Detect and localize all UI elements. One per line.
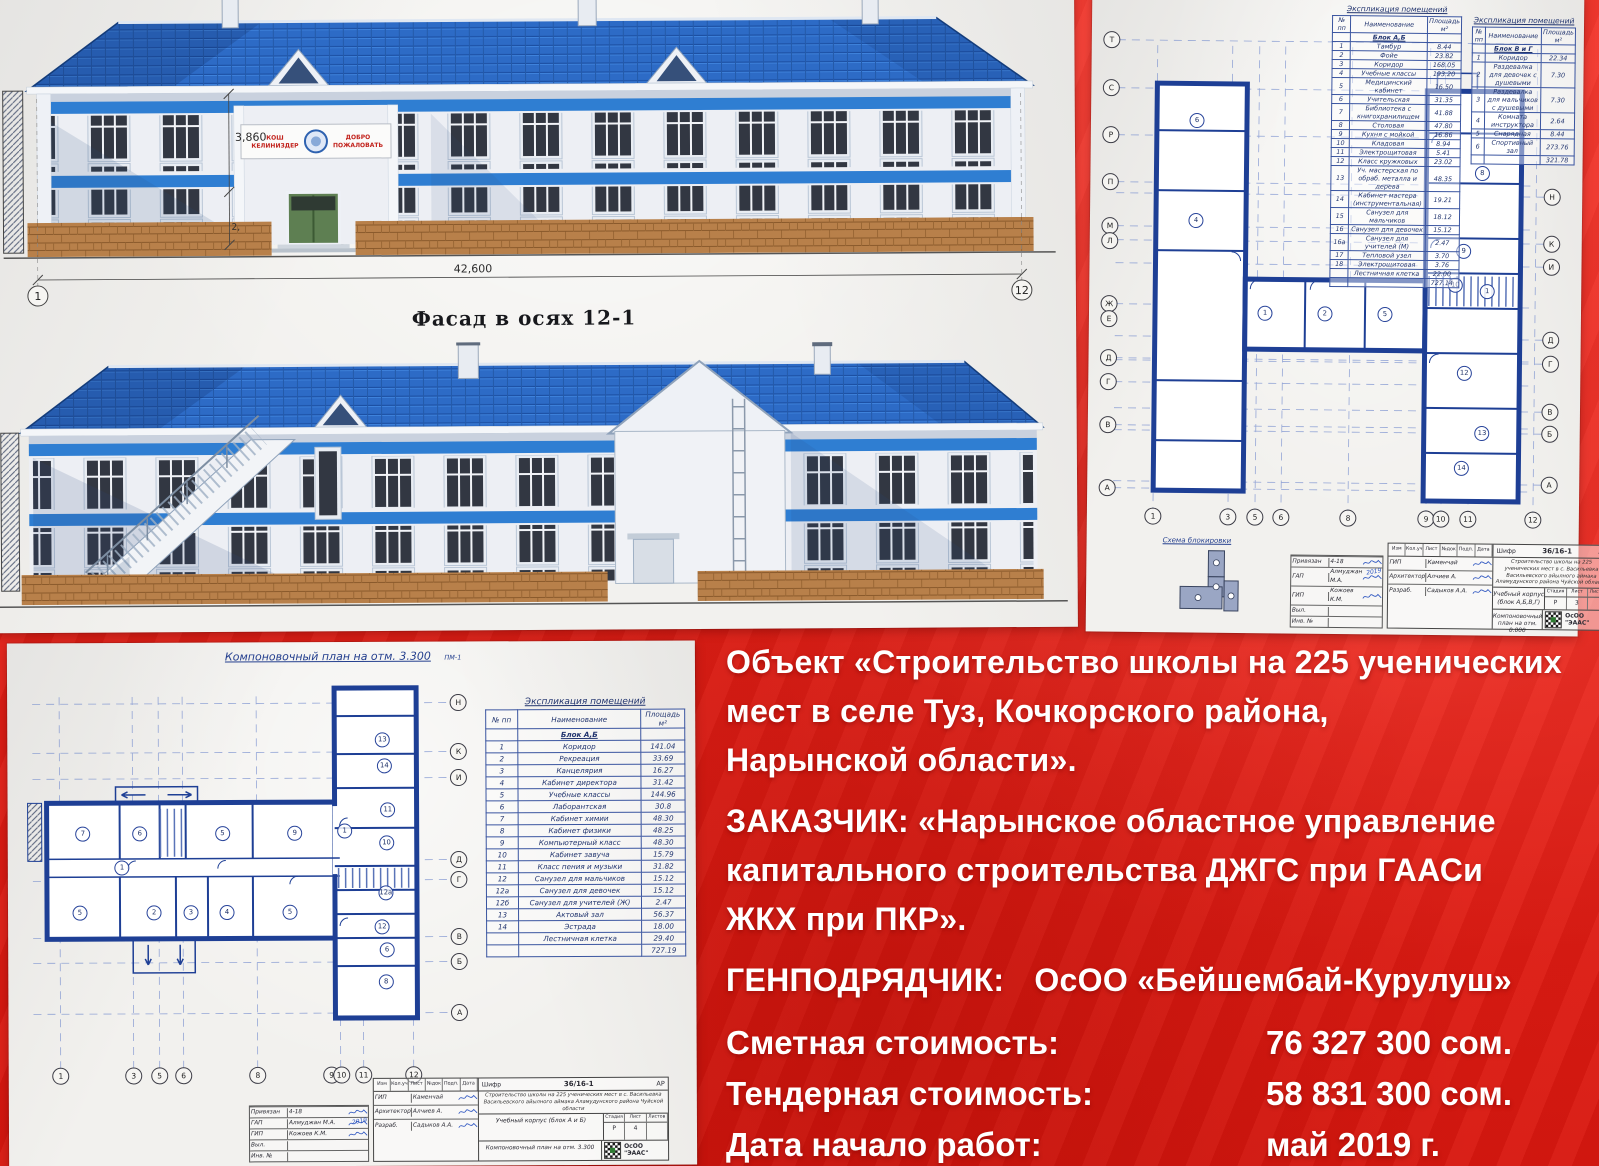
object-line: Нарынской области».: [726, 736, 1599, 785]
sheet-number: 4: [625, 1123, 646, 1140]
stamp-row: ГИПКаменчай: [374, 1091, 478, 1104]
axis-circle: Н: [1544, 189, 1561, 206]
signature-scribble: [1362, 558, 1382, 567]
table-row: Лестничная клетка29.40: [487, 932, 686, 945]
stamp-row: Привязан4-18: [1291, 556, 1382, 568]
rear-facade-drawing: [0, 339, 1070, 632]
signature-scribble: [1472, 559, 1492, 568]
stamp-row: Разраб.Садыков А.А.: [374, 1118, 478, 1132]
project-description: Строительство школы на 225 ученических м…: [1493, 558, 1599, 589]
axis-circle: Т: [1103, 31, 1120, 48]
axis-circle: А: [451, 1004, 468, 1021]
room-number-circle: 5: [72, 906, 87, 921]
table-row: 3Раздевалка для мальчиков с душевыми7.30: [1472, 87, 1575, 113]
axis-circle: И: [1543, 259, 1560, 276]
table-row: 16аСанузел для учителей (М)2.47: [1330, 233, 1459, 251]
contractor-label: ГЕНПОДРЯДЧИК:: [726, 962, 1004, 998]
code-value: 36/16-1: [1516, 547, 1599, 556]
axis-circle: 3: [1219, 508, 1236, 525]
table-row: 2Раздевалка для девочек с душевыми7.30: [1472, 62, 1575, 88]
title-block: 2019 Привязан4-18ГАПАлмуджан М.А.ГИПКожо…: [1290, 542, 1569, 631]
room-number-circle: 13: [375, 732, 390, 747]
room-schedule: № ппНаименованиеПлощадь м²Блок А,Б1Корид…: [485, 709, 686, 958]
welcome-text-ru-2: ПОЖАЛОВАТЬ: [333, 142, 384, 149]
plan-caption-text: Компоновочный план на отм. 3.300: [225, 650, 431, 664]
blocking-scheme-diagram: [1162, 546, 1283, 619]
room-number-circle: 6: [379, 942, 394, 957]
table-row: 9Компьютерный класс48.30: [486, 836, 685, 849]
room-number-circle: 4: [1188, 213, 1203, 228]
start-date-value: май 2019 г.: [1266, 1119, 1440, 1166]
title-block: 2019 Привязан4-18ГАПАлмуджан М.А.ГИПКожо…: [249, 1077, 669, 1163]
drawing-title: Компоновочный план на отм. 3.300: [479, 1141, 602, 1161]
room-number-circle: 4: [220, 905, 235, 920]
drawing-title: Компоновочный план на отм. 0.000: [1493, 610, 1543, 630]
facades-sheet: КОШ КЕЛИНИЗДЕР ДОБРО ПОЖАЛОВАТЬ 42,600 3…: [0, 0, 1078, 633]
table-row: 4Кабинет директора31.42: [486, 776, 685, 789]
start-date-row: Дата начало работ: май 2019 г.: [726, 1119, 1599, 1166]
stamp-binding-table: 2019 Привязан4-18ГАПАлмуджан М.А.ГИПКожо…: [249, 1105, 369, 1163]
stamp-signers: ГИПКаменчайАрхитекторАлчиев А.Разраб.Сад…: [1388, 557, 1494, 629]
room-number-circle: 14: [377, 758, 392, 773]
code-label: Шифр: [482, 1081, 501, 1088]
signature-scribble: [458, 1093, 478, 1102]
room-number-circle: 5: [1377, 307, 1392, 322]
axis-circle: В: [1541, 404, 1558, 421]
table-title: Экспликация помещений: [485, 697, 685, 708]
room-number-circle: 10: [379, 835, 394, 850]
axis-circle: К: [1543, 236, 1560, 253]
sheets-total: [1588, 598, 1599, 610]
signature-scribble: [458, 1107, 478, 1116]
sheet-number: 3: [1567, 597, 1588, 609]
banner-text-block: Объект «Строительство школы на 225 учени…: [700, 628, 1599, 1166]
room-number-circle: 5: [215, 826, 230, 841]
upper-floor-plan: НКИДГВБА13568910111276591523451314111012…: [7, 675, 479, 1119]
contractor-value: ОсОО «Бейшембай-Курулуш»: [1034, 962, 1512, 998]
axis-circle: 1: [52, 1068, 69, 1085]
axis-circle: Б: [451, 953, 468, 970]
axis-circle: Г: [1542, 355, 1559, 372]
stamp-main: ИзмКол.учЛист№докПодп.Дата Шифр 36/16-1 …: [373, 1077, 669, 1162]
stamp-row: Разраб.Садыков А.А.: [1388, 584, 1492, 599]
object-name: Учебный корпус (блок А и Б): [479, 1114, 603, 1140]
axis-circle: 12: [1524, 511, 1541, 528]
axis-circle: П: [1102, 173, 1119, 190]
table-row: 7Кабинет химии48.30: [486, 812, 685, 825]
axis-circle: Д: [1100, 349, 1117, 366]
axis-circle: 1: [1144, 507, 1161, 524]
room-number-circle: 6: [1190, 113, 1205, 128]
room-number-circle: 3: [183, 905, 198, 920]
sheets-total: [647, 1123, 668, 1140]
stamp-row: Привязан4-18: [250, 1106, 368, 1118]
axis-circle: Е: [1100, 310, 1117, 327]
room-schedule-block-vg: Экспликация помещений № ппНаименованиеПл…: [1471, 15, 1577, 165]
signature-scribble: [1362, 592, 1382, 601]
customer-line: капитального строительства ДЖГС при ГААС…: [726, 846, 1599, 895]
stamp-row: Инв. №: [1291, 616, 1382, 628]
table-row: 5Медицинский кабинет16.50: [1332, 77, 1461, 95]
axis-circle: И: [450, 769, 467, 786]
revision-header-cells: ИзмКол.учЛист№докПодп.Дата: [1389, 544, 1494, 557]
brick-fence-left: [22, 572, 608, 606]
dim-total-width: 42,600: [454, 262, 493, 275]
table-row: 321.78: [1471, 155, 1574, 165]
table-row: 11Класс пения и музыки31.82: [486, 860, 685, 873]
table-row: 4Комната инструктора2.64: [1471, 112, 1574, 130]
axis-circle: В: [451, 928, 468, 945]
table-row: 14Кабинет мастера (инструментальная)19.2…: [1331, 190, 1460, 208]
stamp-row: Выл.: [250, 1139, 368, 1151]
axis-circle: Л: [1101, 232, 1118, 249]
room-number-circle: 14: [1454, 461, 1469, 476]
object-line: Объект «Строительство школы на 225 учени…: [726, 638, 1599, 687]
room-number-circle: 5: [283, 905, 298, 920]
axis-circle: 5: [1246, 508, 1263, 525]
axis-circle: С: [1103, 79, 1120, 96]
project-description: Строительство школы на 225 ученических м…: [479, 1091, 668, 1115]
mark-ar: АР: [656, 1080, 664, 1088]
axis-circle: 11: [1459, 510, 1476, 527]
dim-floor-height-lower: 2,: [231, 223, 240, 233]
room-schedule-table: Экспликация помещений № ппНаименованиеПл…: [485, 697, 686, 958]
axis-circle: Д: [1542, 332, 1559, 349]
upper-floor-plan-sheet: Компоновочный план на отм. 3.300 ПМ-1: [7, 641, 697, 1166]
table-row: 8Кабинет физики48.25: [486, 824, 685, 837]
axis-circle: В: [1099, 416, 1116, 433]
table-row: 13Уч. мастерская по обраб. металла и дер…: [1331, 165, 1460, 191]
stage-headers: СтадияЛистЛистов: [604, 1114, 668, 1123]
signature-scribble: [458, 1121, 478, 1130]
room-number-circle: 9: [287, 826, 302, 841]
plan-caption: Компоновочный план на отм. 3.300 ПМ-1: [225, 650, 461, 664]
porch: [133, 939, 195, 973]
room-number-circle: 12: [1457, 366, 1472, 381]
table-row: 12Санузел для мальчиков15.12: [486, 872, 685, 885]
signature-scribble: [1472, 587, 1492, 596]
room-number-circle: 8: [1475, 166, 1490, 181]
room-number-circle: 11: [380, 802, 395, 817]
table-row: 6Лаборантская30.8: [486, 800, 685, 813]
dim-floor-height-upper: 3,860: [235, 131, 267, 144]
axis-circle: Б: [1541, 426, 1558, 443]
table-title: Экспликация помещений: [1332, 4, 1462, 14]
start-date-label: Дата начало работ:: [726, 1119, 1266, 1166]
table-row: 1Коридор141.04: [486, 740, 685, 753]
axis-circle: Г: [451, 871, 468, 888]
customer-line: ЖКХ при ПКР».: [726, 895, 1599, 944]
signature-scribble: [1472, 573, 1492, 582]
stamp-main: ИзмКол.учЛист№докПодп.Дата Шифр 36/16-1 …: [1387, 543, 1599, 631]
axis-label-12: 12: [1015, 284, 1029, 297]
room-schedule: № ппНаименованиеПлощадь м²Блок А,Б1Тамбу…: [1329, 15, 1462, 288]
stamp-row: АрхитекторАлчиев А.: [1388, 570, 1492, 585]
room-number-circle: 2: [1317, 306, 1332, 321]
tender-cost-label: Тендерная стоимость:: [726, 1068, 1266, 1119]
table-row: 727.14: [1330, 277, 1459, 287]
room-schedule-block-ab: Экспликация помещений № ппНаименованиеПл…: [1329, 4, 1462, 288]
table-row: 7Библиотека с книгохранилищем41.88: [1332, 103, 1461, 121]
revision-header-cells: ИзмКол.учЛист№докПодп.Дата: [374, 1078, 479, 1090]
firm-name: ОсОО "ЭААС": [624, 1143, 666, 1157]
table-row: 15Санузел для мальчиков18.12: [1330, 207, 1459, 225]
facade-caption: Фасад в осях 12-1: [304, 305, 744, 332]
axis-circle: Н: [450, 694, 467, 711]
blocking-scheme: Схема блокировки: [1162, 536, 1293, 619]
windows-row-upper: [41, 110, 1021, 172]
object-line: мест в селе Туз, Кочкорского района,: [726, 687, 1599, 736]
table-row: 3Канцелярия16.27: [486, 764, 685, 777]
axis-circle: 6: [175, 1067, 192, 1084]
room-number-circle: 6: [132, 826, 147, 841]
signature-scribble: [348, 1129, 368, 1138]
object-name: Учебный корпус (блок А,Б,В,Г): [1493, 588, 1544, 610]
axis-circle: А: [1099, 479, 1116, 496]
room-number-circle: 1: [1258, 306, 1273, 321]
customer-line: ЗАКАЗЧИК: «Нарынское областное управлени…: [726, 797, 1599, 846]
axis-circle: Г: [1100, 373, 1117, 390]
stamp-row: ГИПКожоев К.М.: [250, 1128, 368, 1140]
welcome-text-kg-1: КОШ: [266, 135, 283, 142]
table-row: 10Кабинет завуча15.79: [486, 848, 685, 861]
axis-circle: Р: [1102, 126, 1119, 143]
code-label: Шифр: [1497, 547, 1516, 554]
qr-code-icon: [1545, 611, 1562, 628]
room-number-circle: 12а: [378, 885, 393, 900]
axis-circle: 3: [125, 1068, 142, 1085]
table-row: 727.19: [487, 944, 686, 957]
table-row: 14Эстрада18.00: [487, 920, 686, 933]
axis-circle: Д: [450, 851, 467, 868]
stamp-row: ГИПКожоев К.М.: [1291, 586, 1382, 606]
ground-floor-plan-sheet: ТСРПМЛЖЕДГВАНКИДГВБА13568910111264125891…: [1086, 0, 1585, 637]
estimate-cost-row: Сметная стоимость: 76 327 300 сом.: [726, 1017, 1599, 1068]
blocking-scheme-title: Схема блокировки: [1163, 536, 1293, 545]
brick-fence-right: [698, 569, 1044, 601]
stamp-row: ГАПАлмуджан М.А.: [250, 1117, 368, 1129]
table-row: 2Рекреация33.69: [486, 752, 685, 765]
stage-value: Р: [604, 1123, 625, 1140]
construction-info-banner-photo: КОШ КЕЛИНИЗДЕР ДОБРО ПОЖАЛОВАТЬ 42,600 3…: [0, 0, 1599, 1166]
axis-label-1: 1: [34, 290, 41, 303]
contractor-line: ГЕНПОДРЯДЧИК:ОсОО «Бейшембай-Курулуш»: [726, 956, 1599, 1005]
stamp-row: Выл.: [1291, 605, 1382, 617]
estimate-cost-label: Сметная стоимость:: [726, 1017, 1266, 1068]
welcome-text-ru-1: ДОБРО: [346, 134, 371, 141]
room-schedule: № ппНаименованиеПлощадь м²Блок В и Г1Кор…: [1471, 26, 1576, 165]
signature-scribble: [348, 1107, 368, 1116]
code-value: 36/16-1: [501, 1080, 656, 1089]
stamp-binding-table: 2019 Привязан4-18ГАПАлмуджан М.А.ГИПКожо…: [1290, 555, 1384, 629]
qr-code-icon: [604, 1142, 621, 1159]
stamp-signers: ГИПКаменчайАрхитекторАлчиев А.Разраб.Сад…: [374, 1091, 479, 1160]
table-row: 13Актовый зал56.37: [487, 908, 686, 921]
stamp-row: АрхитекторАлчиев А.: [374, 1104, 478, 1118]
axis-circle: К: [450, 743, 467, 760]
axis-circle: 8: [1339, 509, 1356, 526]
tender-cost-row: Тендерная стоимость: 58 831 300 сом.: [726, 1068, 1599, 1119]
table-row: 6Спортивный зал273.76: [1471, 138, 1574, 156]
axis-circle: А: [1541, 476, 1558, 493]
stamp-row: ГИПКаменчай: [1388, 557, 1492, 571]
plan-caption-note: ПМ-1: [444, 654, 461, 662]
axis-circle: 10: [1432, 510, 1449, 527]
stage-value: Р: [1545, 597, 1566, 609]
brick-fence-right: [355, 217, 1033, 255]
table-row: 12аСанузел для девочек15.12: [486, 884, 685, 897]
estimate-cost-value: 76 327 300 сом.: [1266, 1017, 1512, 1068]
room-number-circle: 1: [337, 824, 352, 839]
left-edge-hatch: [3, 91, 24, 253]
table-row: 12бСанузел для учителей (Ж)2.47: [486, 896, 685, 909]
room-number-circle: 1: [115, 860, 130, 875]
main-facade-drawing: КОШ КЕЛИНИЗДЕР ДОБРО ПОЖАЛОВАТЬ 42,600 3…: [0, 0, 1058, 307]
firm-name: ОсОО "ЭААС": [1565, 613, 1599, 627]
room-number-circle: 2: [147, 905, 162, 920]
tender-cost-value: 58 831 300 сом.: [1266, 1068, 1512, 1119]
table-row: 5Учебные классы144.96: [486, 788, 685, 801]
room-number-circle: 1: [1480, 284, 1495, 299]
room-number-circle: 12: [375, 919, 390, 934]
table-title: Экспликация помещений: [1472, 15, 1576, 25]
axis-circle: 5: [151, 1067, 168, 1084]
room-number-circle: 13: [1474, 426, 1489, 441]
axis-circle: 6: [1272, 508, 1289, 525]
room-number-circle: 7: [75, 827, 90, 842]
stamp-row: Инв. №: [250, 1150, 368, 1162]
room-number-circle: 8: [379, 974, 394, 989]
